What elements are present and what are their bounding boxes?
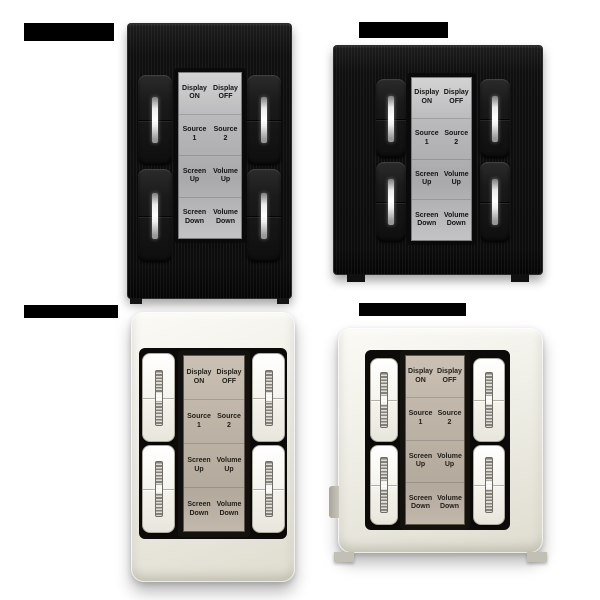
label-display-off: DisplayOFF [210,85,241,102]
led-indicator [492,96,498,142]
label-row: ScreenDownVolumeDown [412,199,471,240]
engraved-label-strip: DisplayONDisplayOFFSource1Source2ScreenU… [411,77,472,241]
label-display-off: DisplayOFF [442,89,472,106]
label-source-2: Source2 [435,410,464,427]
right-button-column [247,75,281,262]
led-indicator [492,179,498,225]
label-volume-down: VolumeDown [214,501,244,518]
led-indicator [261,97,267,143]
rocker-screen-up-screen-down [138,169,172,262]
mounting-tab [329,486,339,518]
label-row: ScreenDownVolumeDown [179,197,241,239]
label-row: ScreenDownVolumeDown [406,482,464,524]
rocker-display-on-source-1 [376,79,406,158]
rocker-display-off-source-2 [480,79,510,158]
label-row: Source1Source2 [184,399,244,443]
engraved-label-strip: DisplayONDisplayOFFSource1Source2ScreenU… [405,355,465,525]
keypad-product-collage: DisplayONDisplayOFFSource1Source2ScreenU… [0,0,600,600]
label-row: ScreenUpVolumeUp [184,443,244,487]
rocker-display-on-source-1 [138,75,172,165]
label-screen-up: ScreenUp [179,168,210,185]
right-button-column [480,79,510,242]
label-screen-up: ScreenUp [184,457,214,474]
label-volume-up: VolumeUp [214,457,244,474]
engraved-label-strip: DisplayONDisplayOFFSource1Source2ScreenU… [178,72,242,239]
label-screen-down: ScreenDown [179,209,210,226]
rocker-display-on-source-1 [142,353,175,442]
label-source-2: Source2 [210,126,241,143]
label-screen-up: ScreenUp [406,453,435,470]
label-source-2: Source2 [214,413,244,430]
rocker-screen-up-screen-down [376,162,406,242]
label-window-frame: DisplayONDisplayOFFSource1Source2ScreenU… [174,68,246,243]
label-screen-up: ScreenUp [412,171,442,188]
label-row: Source1Source2 [406,397,464,439]
rocker-volume-up-volume-down [473,445,505,525]
led-indicator [261,193,267,239]
keypad-black-portrait: DisplayONDisplayOFFSource1Source2ScreenU… [127,23,292,299]
label-source-1: Source1 [179,126,210,143]
left-button-column [376,79,406,242]
redacted-brand-label [359,303,466,316]
label-row: Source1Source2 [179,114,241,156]
led-indicator [155,370,163,426]
led-indicator [152,97,158,143]
label-source-1: Source1 [412,130,442,147]
right-button-column [473,358,505,525]
led-indicator [485,372,493,428]
label-display-on: DisplayON [184,369,214,386]
rocker-volume-up-volume-down [252,445,285,533]
label-window-frame: DisplayONDisplayOFFSource1Source2ScreenU… [400,350,470,530]
label-source-1: Source1 [184,413,214,430]
label-row: ScreenUpVolumeUp [179,155,241,197]
label-volume-up: VolumeUp [210,168,241,185]
rocker-volume-up-volume-down [247,169,281,262]
left-button-column [142,353,175,533]
rocker-display-on-source-1 [370,358,398,442]
label-row: DisplayONDisplayOFF [412,78,471,118]
label-source-1: Source1 [406,410,435,427]
redacted-brand-label [359,22,448,38]
led-indicator [485,457,493,513]
label-row: DisplayONDisplayOFF [184,356,244,399]
keypad-black-square: DisplayONDisplayOFFSource1Source2ScreenU… [333,45,543,275]
label-volume-up: VolumeUp [435,453,464,470]
label-row: DisplayONDisplayOFF [179,73,241,114]
led-indicator [265,461,273,517]
label-row: ScreenUpVolumeUp [412,159,471,200]
label-display-off: DisplayOFF [435,368,464,385]
rocker-screen-up-screen-down [142,445,175,533]
label-row: DisplayONDisplayOFF [406,356,464,397]
label-screen-down: ScreenDown [184,501,214,518]
right-button-column [252,353,285,533]
label-volume-down: VolumeDown [210,209,241,226]
label-volume-up: VolumeUp [442,171,472,188]
led-indicator [380,457,388,513]
label-volume-down: VolumeDown [435,495,464,512]
redacted-brand-label [24,23,114,41]
label-window-frame: DisplayONDisplayOFFSource1Source2ScreenU… [407,73,476,245]
label-volume-down: VolumeDown [442,212,472,229]
label-row: ScreenDownVolumeDown [184,487,244,531]
led-indicator [388,96,394,142]
left-button-column [370,358,398,525]
redacted-brand-label [24,305,118,318]
label-row: Source1Source2 [412,118,471,159]
label-source-2: Source2 [442,130,472,147]
led-indicator [155,461,163,517]
rocker-display-off-source-2 [252,353,285,442]
rocker-display-off-source-2 [473,358,505,442]
label-display-on: DisplayON [412,89,442,106]
left-button-column [138,75,172,262]
rocker-screen-up-screen-down [370,445,398,525]
led-indicator [265,370,273,426]
led-indicator [388,179,394,225]
led-indicator [380,372,388,428]
led-indicator [152,193,158,239]
keypad-white-portrait: DisplayONDisplayOFFSource1Source2ScreenU… [131,312,295,582]
label-display-on: DisplayON [179,85,210,102]
keypad-white-square: DisplayONDisplayOFFSource1Source2ScreenU… [338,328,543,553]
rocker-display-off-source-2 [247,75,281,165]
engraved-label-strip: DisplayONDisplayOFFSource1Source2ScreenU… [183,355,245,532]
label-display-on: DisplayON [406,368,435,385]
label-row: ScreenUpVolumeUp [406,440,464,482]
label-window-frame: DisplayONDisplayOFFSource1Source2ScreenU… [178,350,250,537]
label-display-off: DisplayOFF [214,369,244,386]
rocker-volume-up-volume-down [480,162,510,242]
label-screen-down: ScreenDown [412,212,442,229]
label-screen-down: ScreenDown [406,495,435,512]
